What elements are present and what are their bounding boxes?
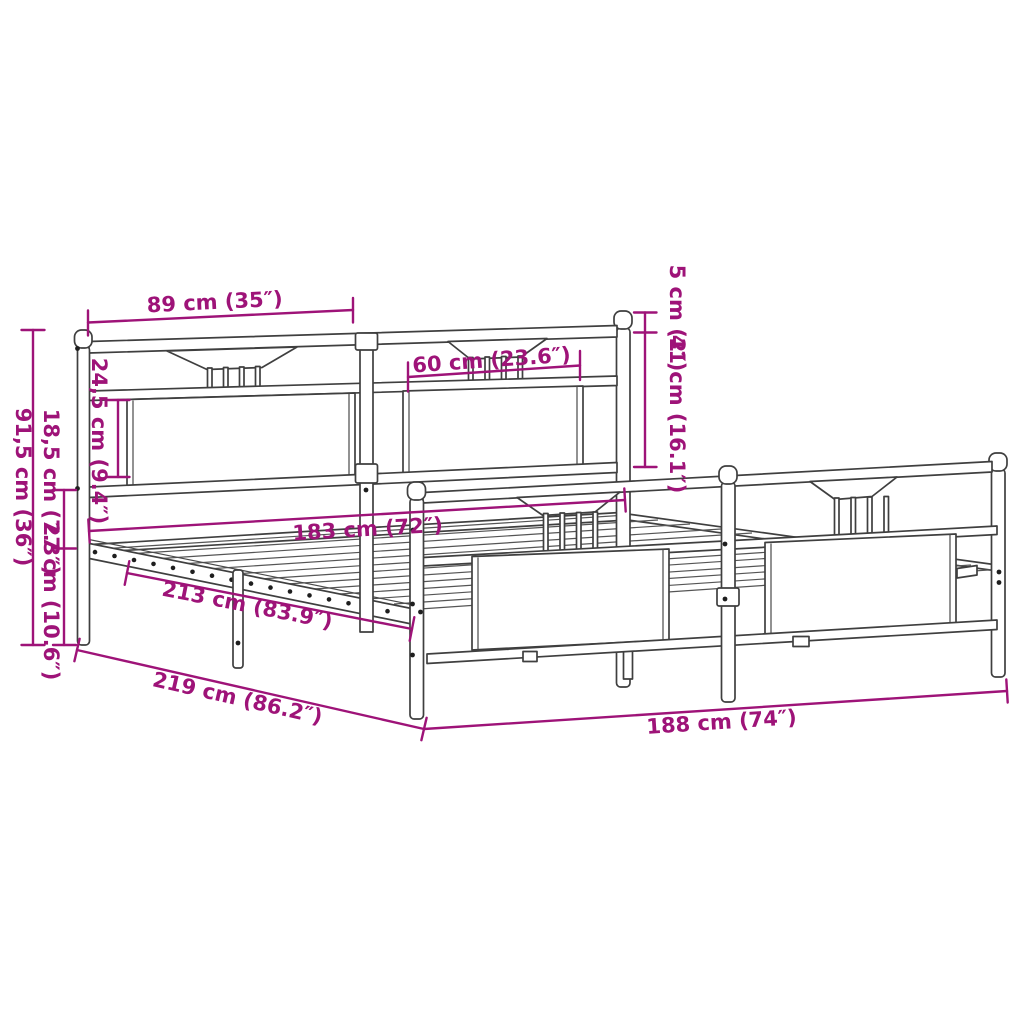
stretcher-support — [624, 650, 633, 679]
footboard-panel-far — [765, 534, 956, 634]
dimension-label-219cm: 219 cm (86.2″) — [150, 667, 324, 729]
dimension-rail-and-clearance: 18,5 cm (7.3″) 27 cm (10.6″) — [39, 409, 76, 681]
bed-frame-dimension-diagram: 89 cm (35″) 60 cm (23.6″) 5 cm (2″) 41 c… — [0, 0, 1024, 1024]
headboard-panel-right — [403, 386, 583, 474]
dimension-headboard-section-width: 89 cm (35″) — [88, 287, 353, 336]
dimension-headboard-upper: 5 cm (2″) 41 cm (16.1″) — [634, 265, 689, 494]
diagram-canvas: 89 cm (35″) 60 cm (23.6″) 5 cm (2″) 41 c… — [0, 0, 1024, 1024]
dimension-label-89cm: 89 cm (35″) — [146, 287, 283, 318]
dimension-panel-height: 24,5 cm (9.4″) — [87, 358, 130, 525]
headboard-panel-left — [127, 393, 355, 486]
side-rail-connector — [957, 566, 977, 579]
dimension-label-27cm: 27 cm (10.6″) — [39, 522, 63, 681]
dimension-label-41cm: 41 cm (16.1″) — [665, 335, 689, 494]
headboard-bracket-left — [167, 347, 297, 370]
footboard — [408, 453, 1008, 719]
headboard-left-finial — [75, 330, 93, 348]
footboard-middle-finial — [719, 466, 737, 484]
dimension-label-91-5cm: 91,5 cm (36″) — [11, 408, 35, 567]
dimension-label-24-5cm: 24,5 cm (9.4″) — [87, 358, 111, 525]
dimension-outer-length: 219 cm (86.2″) — [74, 639, 426, 740]
dimension-outer-width: 188 cm (74″) — [424, 680, 1008, 739]
footboard-near-finial — [408, 482, 426, 500]
footboard-panel-near — [472, 549, 669, 650]
dimension-label-188cm: 188 cm (74″) — [646, 705, 798, 739]
center-support-leg — [233, 570, 243, 668]
